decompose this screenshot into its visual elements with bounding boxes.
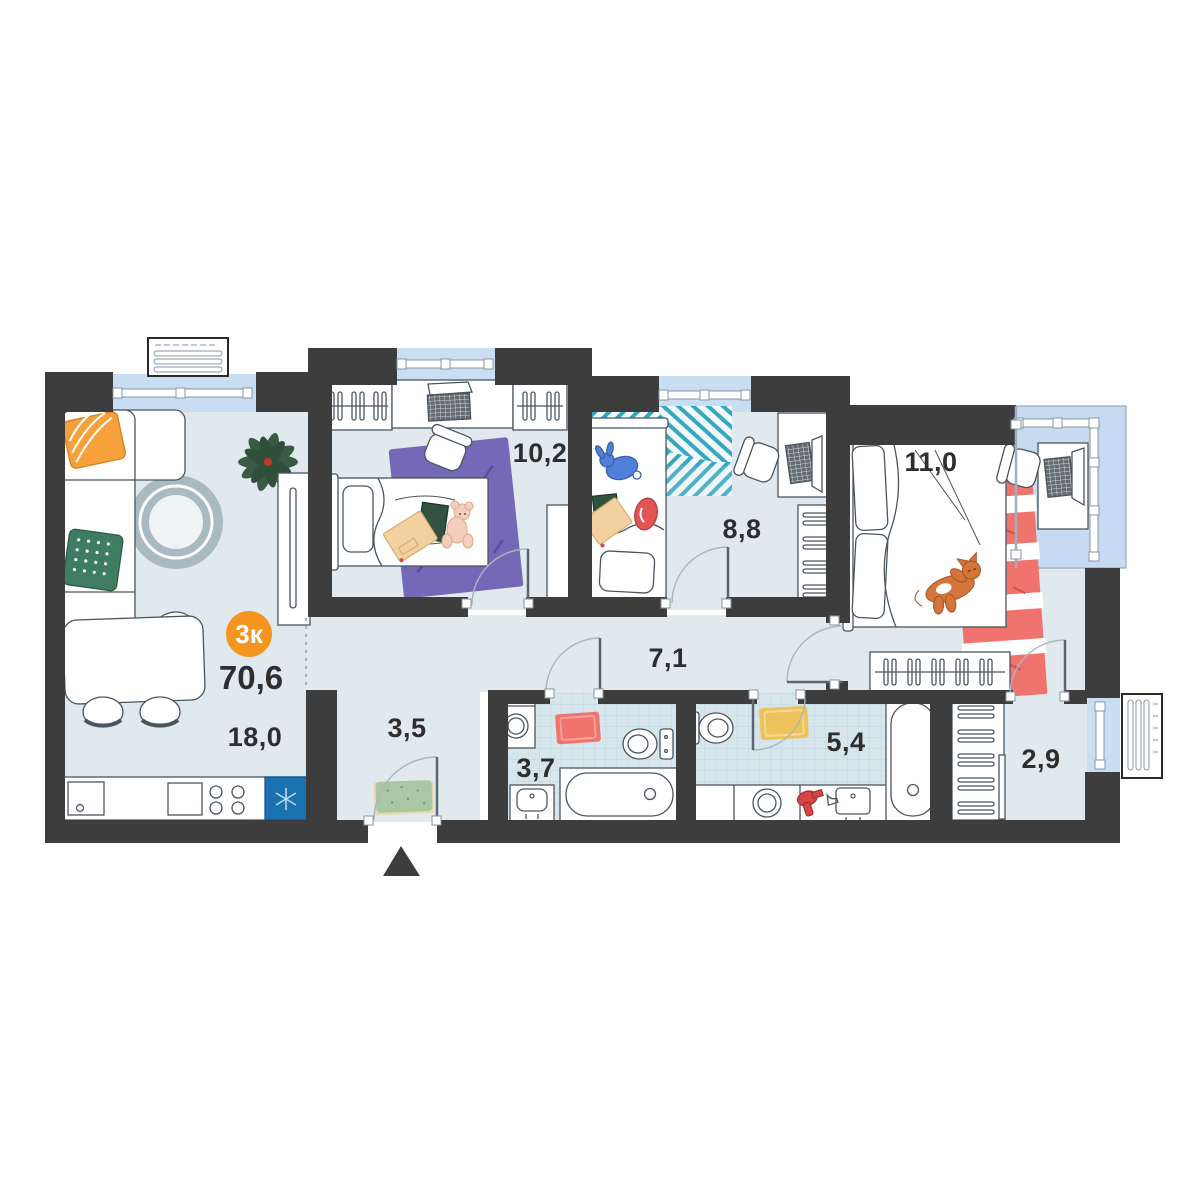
desk — [392, 380, 513, 428]
bed-single — [325, 474, 488, 570]
area-bedroom-1: 10,2 — [513, 438, 568, 468]
doormat — [373, 780, 434, 815]
area-bedroom-2: 8,8 — [722, 514, 761, 544]
wardrobe — [513, 382, 567, 430]
entrance-triangle-icon — [383, 846, 420, 876]
floor-plan-canvas: 3к 70,6 18,0 3,5 10,2 8,8 7,1 11,0 3,7 5… — [0, 0, 1200, 1200]
ac-unit-top — [148, 338, 228, 376]
window-living — [113, 388, 252, 398]
dining-chair — [83, 697, 123, 727]
area-bathroom-2: 5,4 — [826, 727, 865, 757]
laptop — [427, 382, 472, 421]
total-area-label: 70,6 — [219, 659, 283, 696]
kitchen-counter — [62, 777, 307, 820]
badge-text: 3к — [235, 619, 263, 649]
area-bedroom-3: 11,0 — [904, 447, 957, 477]
window-bedroom-2 — [659, 390, 750, 400]
cutting-board — [168, 783, 202, 815]
area-corridor: 7,1 — [648, 643, 687, 673]
desk — [778, 413, 832, 497]
area-closet: 2,9 — [1021, 744, 1060, 774]
tall-cabinet-living — [278, 473, 310, 625]
area-hallway: 3,5 — [387, 713, 426, 743]
sink — [510, 785, 554, 821]
apartment-type-badge: 3к — [226, 611, 272, 657]
window-closet — [1095, 702, 1105, 769]
area-kitchen-living: 18,0 — [228, 722, 283, 752]
bathmat-yellow — [759, 706, 809, 740]
pillow-green — [62, 529, 123, 592]
desk — [1038, 443, 1088, 529]
wardrobe — [870, 652, 1010, 692]
bathtub — [560, 768, 680, 821]
toilet — [623, 729, 673, 759]
closet-shelving — [952, 698, 1005, 820]
area-bathroom-1: 3,7 — [516, 753, 555, 783]
window-bedroom-1 — [397, 359, 493, 369]
bed-single — [582, 418, 668, 602]
dining-chair — [140, 697, 180, 727]
fridge — [265, 777, 307, 820]
ac-unit-right — [1122, 694, 1162, 778]
round-rug — [129, 475, 223, 569]
bathmat-red — [555, 712, 601, 745]
floor-plan: 3к 70,6 18,0 3,5 10,2 8,8 7,1 11,0 3,7 5… — [0, 0, 1200, 1200]
kitchen-sink — [68, 782, 104, 815]
